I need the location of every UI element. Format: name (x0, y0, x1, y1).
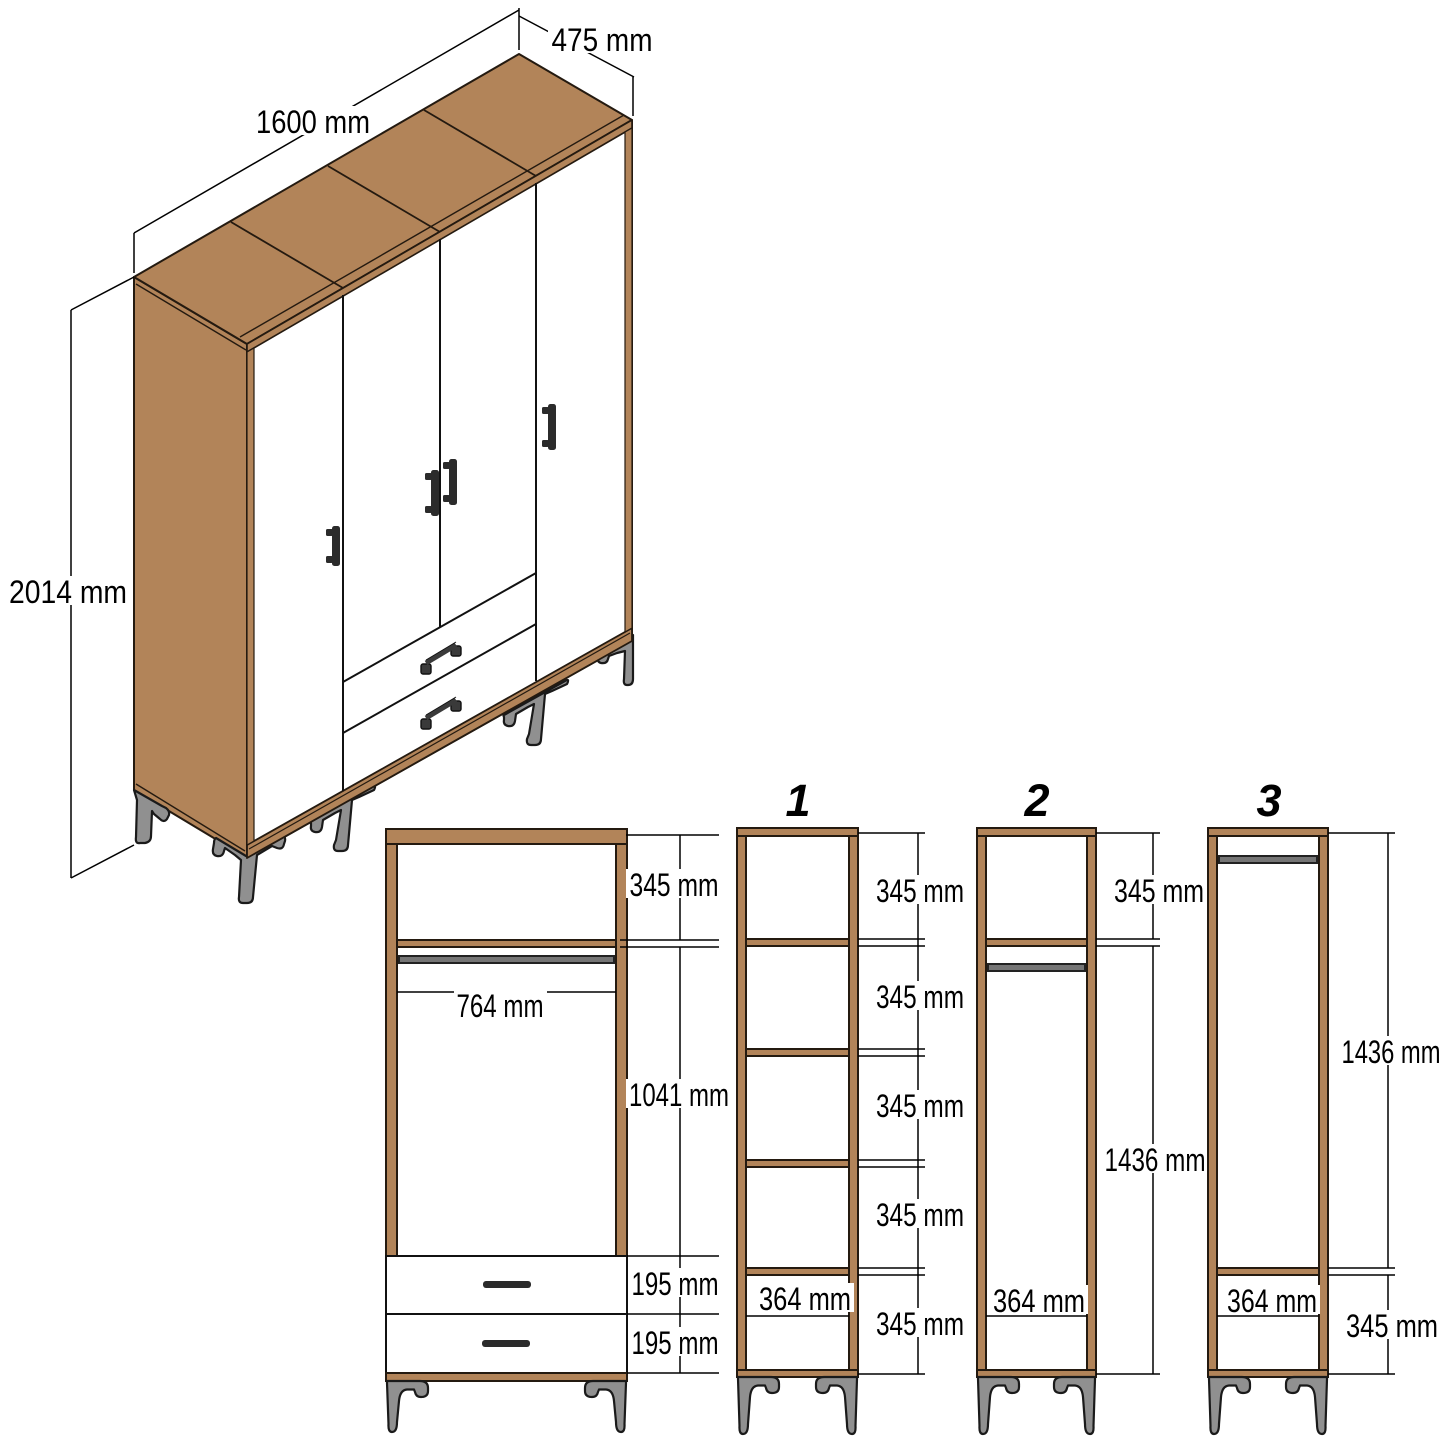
svg-text:364 mm: 364 mm (993, 1283, 1085, 1319)
svg-text:1600 mm: 1600 mm (256, 104, 370, 140)
svg-text:345 mm: 345 mm (876, 979, 964, 1015)
svg-text:764 mm: 764 mm (457, 988, 544, 1024)
svg-text:1436 mm: 1436 mm (1342, 1034, 1441, 1070)
svg-text:345 mm: 345 mm (876, 1088, 964, 1124)
svg-text:475 mm: 475 mm (552, 22, 653, 58)
svg-text:345 mm: 345 mm (876, 1306, 964, 1342)
svg-text:3: 3 (1256, 775, 1281, 826)
svg-text:2: 2 (1023, 775, 1049, 826)
svg-text:2014 mm: 2014 mm (9, 574, 127, 610)
svg-text:1: 1 (785, 775, 810, 826)
svg-text:345 mm: 345 mm (630, 867, 719, 903)
svg-text:345 mm: 345 mm (1346, 1308, 1438, 1344)
svg-text:345 mm: 345 mm (876, 1197, 964, 1233)
svg-text:1436 mm: 1436 mm (1105, 1142, 1206, 1178)
svg-text:345 mm: 345 mm (876, 873, 964, 909)
svg-text:195 mm: 195 mm (632, 1325, 719, 1361)
svg-text:345 mm: 345 mm (1114, 873, 1204, 909)
svg-text:1041 mm: 1041 mm (629, 1077, 729, 1113)
svg-text:364 mm: 364 mm (759, 1281, 851, 1317)
svg-text:195 mm: 195 mm (632, 1266, 719, 1302)
svg-text:364 mm: 364 mm (1227, 1283, 1317, 1319)
